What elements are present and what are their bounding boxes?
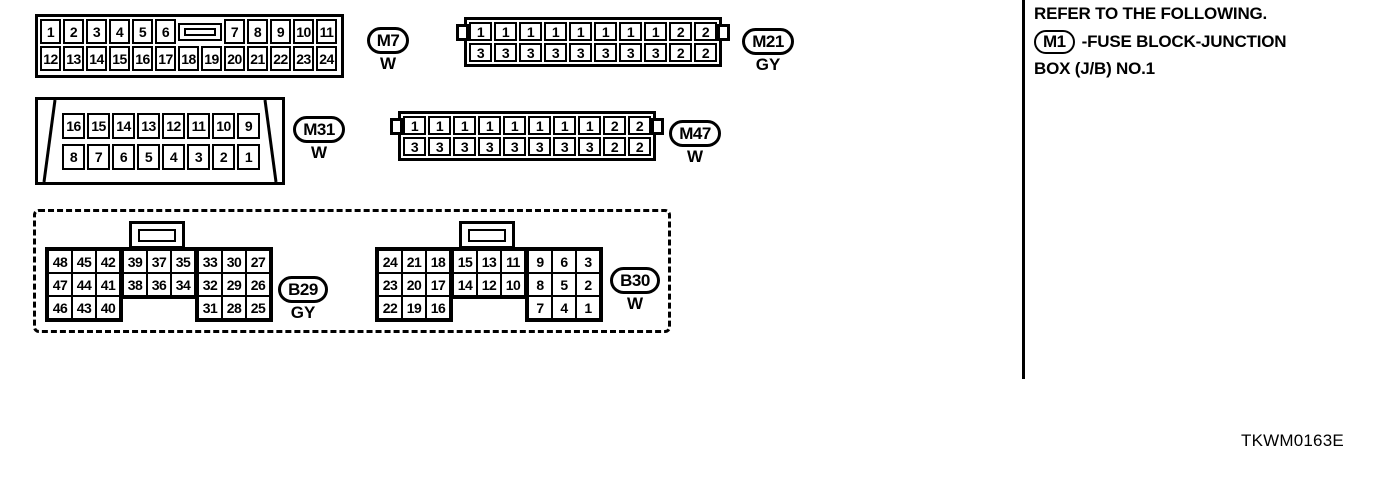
pin-cell-7: 7: [528, 296, 552, 319]
pin-cell-3: 3: [578, 137, 601, 156]
pin-cell-11: 11: [316, 19, 337, 44]
pin-cell-3: 3: [494, 43, 517, 62]
pin-cell-3: 3: [519, 43, 542, 62]
pin-cell-16: 16: [132, 46, 153, 71]
connector-m7-housing: 123456 7891011 1213141516171819202122232…: [35, 14, 344, 78]
b29-left-block: 484542474441464340: [45, 247, 123, 322]
column-divider-line: [1022, 0, 1025, 379]
pin-cell-1: 1: [40, 19, 61, 44]
pin-cell-1: 1: [519, 22, 542, 41]
pin-cell-42: 42: [96, 250, 120, 273]
pin-cell-10: 10: [501, 273, 525, 296]
pin-cell-1: 1: [569, 22, 592, 41]
reference-note-ref-text: -FUSE BLOCK-JUNCTION: [1082, 29, 1287, 55]
connector-b30-housing: 242118232017221916 151311141210 96385274…: [375, 247, 603, 322]
pin-cell-2: 2: [628, 116, 651, 135]
pin-cell-3: 3: [187, 144, 210, 170]
m31-label-oval: M31: [293, 116, 345, 143]
pin-cell-2: 2: [576, 273, 600, 296]
pin-cell-7: 7: [87, 144, 110, 170]
pin-cell-1: 1: [428, 116, 451, 135]
pin-cell-14: 14: [112, 113, 135, 139]
pin-cell-1: 1: [528, 116, 551, 135]
m21-label-oval: M21: [742, 28, 794, 55]
m7-label-oval: M7: [367, 27, 410, 54]
m21-color-code: GY: [756, 55, 781, 75]
connector-pinout-diagram: 123456 7891011 1213141516171819202122232…: [0, 0, 1376, 500]
b30-label-group: B30 W: [604, 267, 666, 314]
pin-cell-4: 4: [162, 144, 185, 170]
pin-cell-2: 2: [669, 22, 692, 41]
pin-cell-19: 19: [201, 46, 222, 71]
pin-cell-3: 3: [428, 137, 451, 156]
pin-cell-23: 23: [378, 273, 402, 296]
pin-cell-9: 9: [237, 113, 260, 139]
pin-cell-1: 1: [494, 22, 517, 41]
pin-cell-48: 48: [48, 250, 72, 273]
pin-cell-1: 1: [576, 296, 600, 319]
b30-middle-block: 151311141210: [450, 247, 528, 299]
pin-cell-1: 1: [544, 22, 567, 41]
b30-latch: [459, 221, 515, 249]
pin-cell-15: 15: [109, 46, 130, 71]
pin-cell-14: 14: [453, 273, 477, 296]
pin-cell-8: 8: [247, 19, 268, 44]
b30-color-code: W: [627, 294, 643, 314]
pin-cell-13: 13: [63, 46, 84, 71]
pin-cell-44: 44: [72, 273, 96, 296]
pin-cell-6: 6: [155, 19, 176, 44]
pin-cell-1: 1: [594, 22, 617, 41]
pin-cell-9: 9: [270, 19, 291, 44]
b29-latch: [129, 221, 185, 249]
pin-cell-4: 4: [109, 19, 130, 44]
reference-note-line1: REFER TO THE FOLLOWING.: [1034, 1, 1286, 27]
pin-cell-2: 2: [694, 43, 717, 62]
b30-right-block: 963852741: [525, 247, 603, 322]
m31-color-code: W: [311, 143, 327, 163]
pin-cell-12: 12: [40, 46, 61, 71]
m31-label-group: M31 W: [288, 116, 350, 163]
reference-note-line3: BOX (J/B) NO.1: [1034, 56, 1286, 82]
m47-label-group: M47 W: [664, 120, 726, 167]
pin-cell-25: 25: [246, 296, 270, 319]
pin-cell-21: 21: [402, 250, 426, 273]
pin-cell-28: 28: [222, 296, 246, 319]
pin-cell-1: 1: [553, 116, 576, 135]
pin-cell-3: 3: [594, 43, 617, 62]
pin-cell-1: 1: [619, 22, 642, 41]
pin-cell-1: 1: [503, 116, 526, 135]
pin-cell-5: 5: [552, 273, 576, 296]
b29-middle-block: 393735383634: [120, 247, 198, 299]
pin-cell-40: 40: [96, 296, 120, 319]
pin-cell-3: 3: [403, 137, 426, 156]
pin-cell-23: 23: [293, 46, 314, 71]
pin-cell-39: 39: [123, 250, 147, 273]
b29-right-block: 333027322926312825: [195, 247, 273, 322]
m21-left-tab: [456, 24, 469, 41]
pin-cell-22: 22: [378, 296, 402, 319]
m31-pin-row-bottom: 87654321: [62, 144, 260, 170]
reference-note: REFER TO THE FOLLOWING. M1 -FUSE BLOCK-J…: [1034, 1, 1286, 82]
pin-cell-5: 5: [132, 19, 153, 44]
pin-cell-8: 8: [528, 273, 552, 296]
pin-cell-1: 1: [453, 116, 476, 135]
pin-cell-38: 38: [123, 273, 147, 296]
pin-cell-20: 20: [402, 273, 426, 296]
connector-m47-housing: 1111111122 3333333322: [398, 111, 656, 161]
b30-label-oval: B30: [610, 267, 660, 294]
m7-pin-row-top: 123456 7891011: [40, 19, 339, 44]
pin-cell-19: 19: [402, 296, 426, 319]
b30-latch-slot: [468, 229, 506, 242]
connector-m31-housing: 161514131211109 87654321: [35, 97, 285, 185]
pin-cell-18: 18: [426, 250, 450, 273]
connector-m21-housing: 1111111122 3333333322: [464, 17, 722, 67]
pin-cell-1: 1: [237, 144, 260, 170]
pin-cell-1: 1: [469, 22, 492, 41]
pin-cell-11: 11: [501, 250, 525, 273]
m1-label-oval: M1: [1034, 30, 1075, 54]
pin-cell-3: 3: [469, 43, 492, 62]
m7-label-group: M7 W: [357, 27, 419, 74]
pin-cell-3: 3: [619, 43, 642, 62]
m31-pin-block: 161514131211109 87654321: [62, 113, 260, 170]
pin-cell-33: 33: [198, 250, 222, 273]
pin-cell-15: 15: [87, 113, 110, 139]
pin-cell-21: 21: [247, 46, 268, 71]
pin-cell-34: 34: [171, 273, 195, 296]
pin-cell-10: 10: [293, 19, 314, 44]
pin-cell-1: 1: [578, 116, 601, 135]
pin-cell-29: 29: [222, 273, 246, 296]
pin-cell-3: 3: [478, 137, 501, 156]
pin-cell-13: 13: [477, 250, 501, 273]
pin-cell-41: 41: [96, 273, 120, 296]
m7-latch: [178, 23, 222, 41]
pin-cell-1: 1: [644, 22, 667, 41]
pin-cell-3: 3: [569, 43, 592, 62]
pin-cell-6: 6: [112, 144, 135, 170]
pin-cell-36: 36: [147, 273, 171, 296]
pin-cell-6: 6: [552, 250, 576, 273]
pin-cell-24: 24: [378, 250, 402, 273]
reference-note-line2: M1 -FUSE BLOCK-JUNCTION: [1034, 29, 1286, 55]
m21-label-group: M21 GY: [737, 28, 799, 75]
pin-cell-8: 8: [62, 144, 85, 170]
b29-color-code: GY: [291, 303, 316, 323]
pin-cell-32: 32: [198, 273, 222, 296]
m47-pin-row-bottom: 3333333322: [403, 137, 651, 156]
pin-cell-13: 13: [137, 113, 160, 139]
m47-color-code: W: [687, 147, 703, 167]
pin-cell-10: 10: [212, 113, 235, 139]
m47-label-oval: M47: [669, 120, 721, 147]
pin-cell-2: 2: [669, 43, 692, 62]
m7-latch-slot: [184, 28, 216, 36]
pin-cell-43: 43: [72, 296, 96, 319]
b29-label-oval: B29: [278, 276, 328, 303]
pin-cell-3: 3: [453, 137, 476, 156]
pin-cell-3: 3: [86, 19, 107, 44]
pin-cell-3: 3: [644, 43, 667, 62]
pin-cell-35: 35: [171, 250, 195, 273]
pin-cell-3: 3: [503, 137, 526, 156]
pin-cell-2: 2: [628, 137, 651, 156]
pin-cell-3: 3: [553, 137, 576, 156]
pin-cell-22: 22: [270, 46, 291, 71]
pin-cell-3: 3: [544, 43, 567, 62]
pin-cell-2: 2: [694, 22, 717, 41]
pin-cell-5: 5: [137, 144, 160, 170]
m47-pin-row-top: 1111111122: [403, 116, 651, 135]
m21-pin-row-bottom: 3333333322: [469, 43, 717, 62]
pin-cell-11: 11: [187, 113, 210, 139]
pin-cell-24: 24: [316, 46, 337, 71]
b29-label-group: B29 GY: [272, 276, 334, 323]
connector-b29-housing: 484542474441464340 393735383634 33302732…: [45, 247, 273, 322]
pin-cell-12: 12: [477, 273, 501, 296]
pin-cell-20: 20: [224, 46, 245, 71]
m21-right-tab: [717, 24, 730, 41]
pin-cell-2: 2: [603, 116, 626, 135]
pin-cell-3: 3: [528, 137, 551, 156]
pin-cell-2: 2: [212, 144, 235, 170]
b30-left-block: 242118232017221916: [375, 247, 453, 322]
b29-latch-slot: [138, 229, 176, 242]
pin-cell-30: 30: [222, 250, 246, 273]
pin-cell-12: 12: [162, 113, 185, 139]
pin-cell-16: 16: [426, 296, 450, 319]
pin-cell-1: 1: [403, 116, 426, 135]
pin-cell-4: 4: [552, 296, 576, 319]
pin-cell-16: 16: [62, 113, 85, 139]
pin-cell-2: 2: [603, 137, 626, 156]
pin-cell-27: 27: [246, 250, 270, 273]
pin-cell-2: 2: [63, 19, 84, 44]
m7-pin-row-bottom: 12131415161718192021222324: [40, 46, 339, 71]
m47-right-tab: [651, 118, 664, 135]
m21-pin-row-top: 1111111122: [469, 22, 717, 41]
pin-cell-18: 18: [178, 46, 199, 71]
m47-left-tab: [390, 118, 403, 135]
m31-pin-row-top: 161514131211109: [62, 113, 260, 139]
m7-color-code: W: [380, 54, 396, 74]
pin-cell-26: 26: [246, 273, 270, 296]
pin-cell-15: 15: [453, 250, 477, 273]
pin-cell-31: 31: [198, 296, 222, 319]
pin-cell-7: 7: [224, 19, 245, 44]
pin-cell-3: 3: [576, 250, 600, 273]
pin-cell-45: 45: [72, 250, 96, 273]
pin-cell-47: 47: [48, 273, 72, 296]
pin-cell-1: 1: [478, 116, 501, 135]
pin-cell-46: 46: [48, 296, 72, 319]
pin-cell-17: 17: [155, 46, 176, 71]
figure-code: TKWM0163E: [1241, 431, 1344, 451]
pin-cell-37: 37: [147, 250, 171, 273]
pin-cell-17: 17: [426, 273, 450, 296]
pin-cell-14: 14: [86, 46, 107, 71]
pin-cell-9: 9: [528, 250, 552, 273]
